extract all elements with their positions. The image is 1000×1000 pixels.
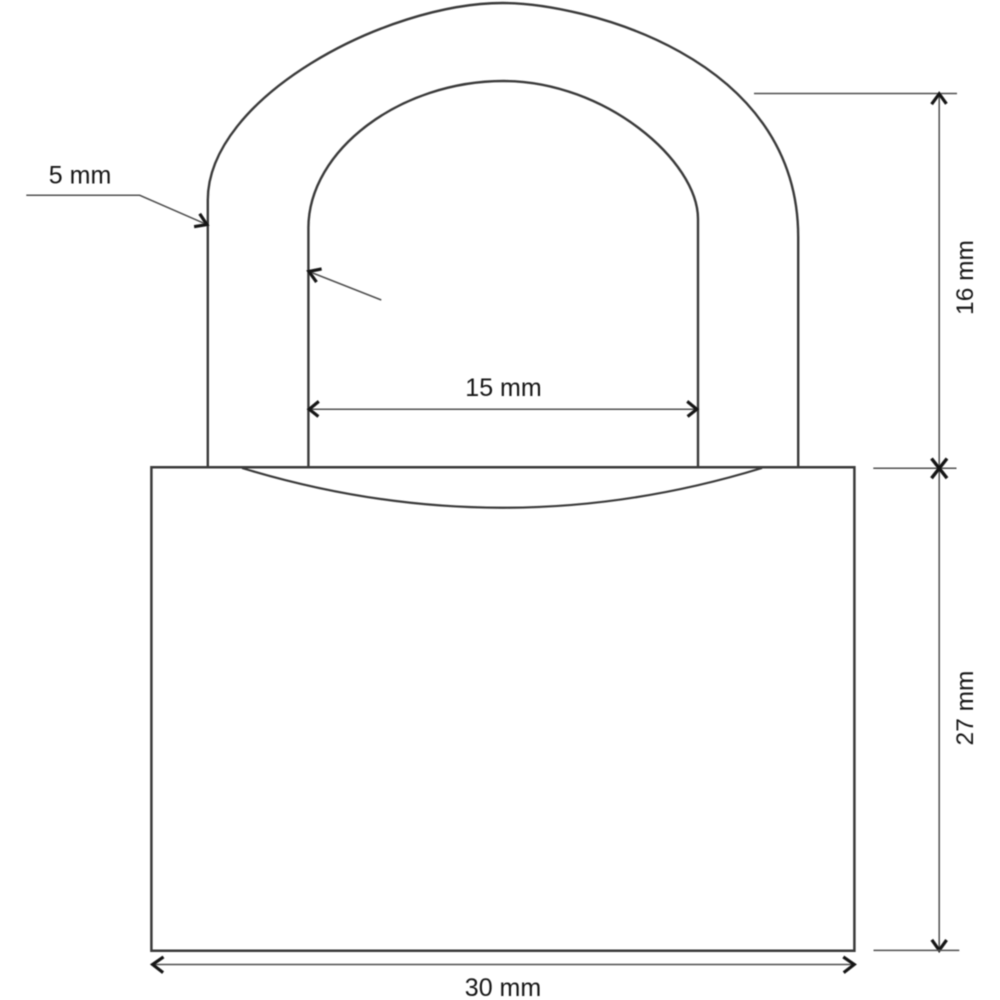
svg-text:5 mm: 5 mm xyxy=(49,162,112,190)
svg-text:15 mm: 15 mm xyxy=(465,374,541,402)
svg-text:27 mm: 27 mm xyxy=(952,671,979,746)
svg-text:30 mm: 30 mm xyxy=(465,974,541,1000)
svg-text:16 mm: 16 mm xyxy=(952,240,979,315)
